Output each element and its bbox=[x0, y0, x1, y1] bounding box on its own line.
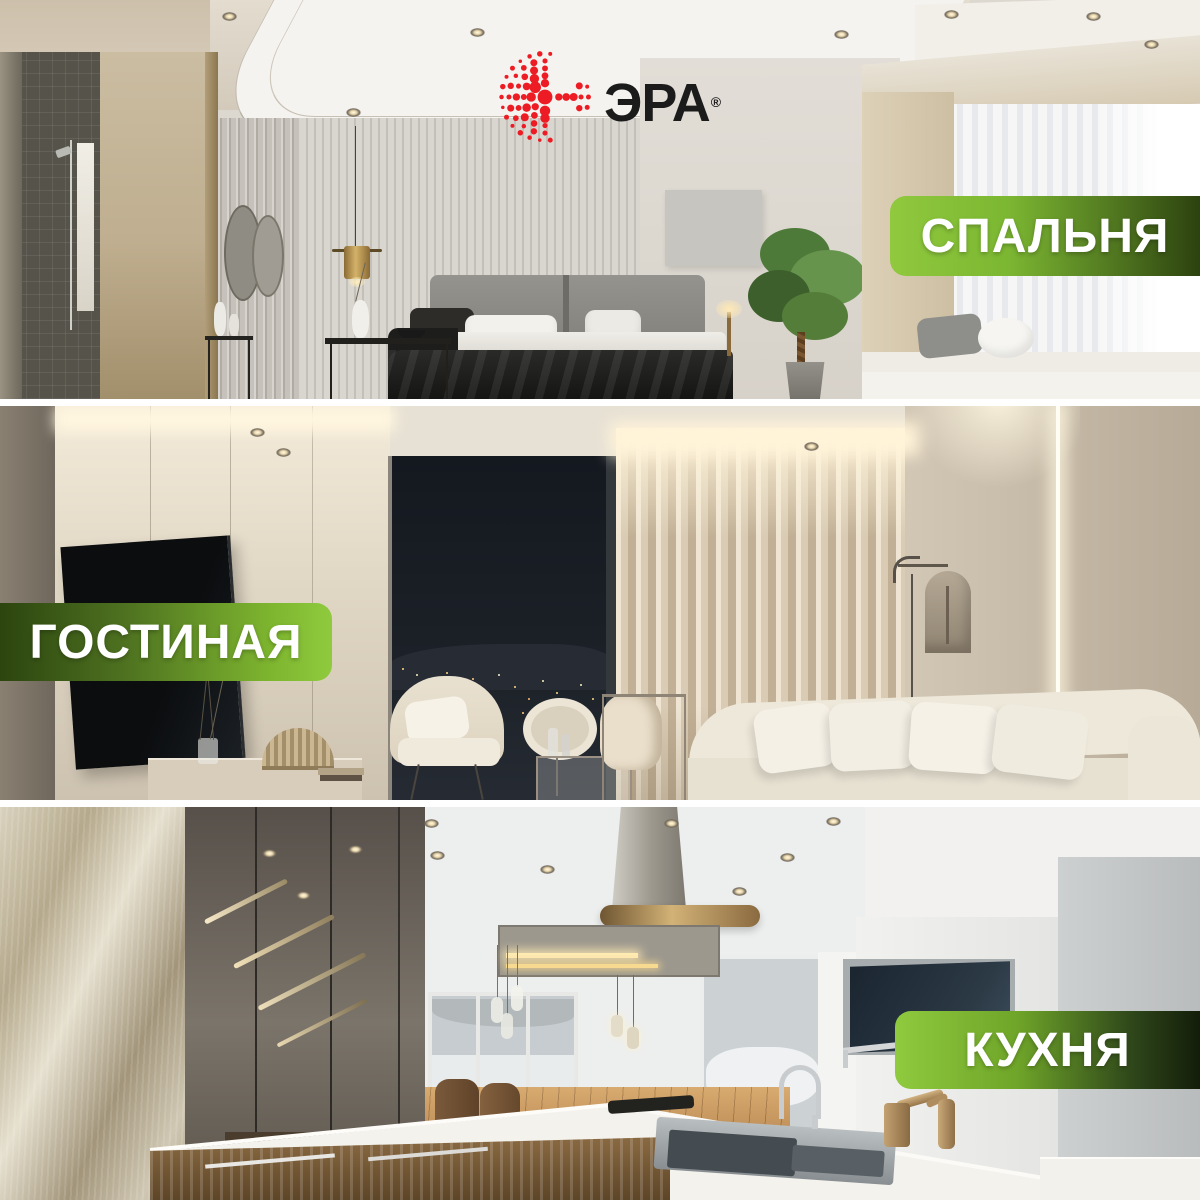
glass-vase bbox=[198, 738, 218, 764]
panel-separator bbox=[0, 399, 1200, 406]
ceiling-spotlight bbox=[944, 10, 959, 19]
armchair-seat bbox=[398, 738, 500, 766]
wardrobe-column bbox=[100, 52, 216, 399]
ceiling-spotlight bbox=[346, 108, 361, 117]
living-room-badge-label: ГОСТИНАЯ bbox=[29, 615, 302, 670]
era-wordmark: ЭРА® bbox=[604, 76, 719, 130]
side-table bbox=[205, 336, 253, 340]
side-table-leg bbox=[248, 340, 250, 399]
wall-sconce bbox=[946, 586, 949, 644]
ceiling-spotlight bbox=[348, 845, 363, 854]
seat-cushion-white bbox=[978, 318, 1034, 358]
chandelier-cord bbox=[507, 945, 508, 1015]
chandelier-glass bbox=[511, 985, 523, 1011]
pendant-bulb bbox=[611, 1015, 623, 1037]
pot-filler-stem bbox=[843, 1050, 848, 1068]
white-vase bbox=[214, 302, 226, 336]
valet-stand bbox=[602, 694, 604, 800]
right-counter bbox=[1040, 1157, 1200, 1200]
bronze-faucet-body bbox=[884, 1103, 910, 1147]
cove-light bbox=[610, 422, 920, 456]
living-room-badge: ГОСТИНАЯ bbox=[0, 603, 332, 681]
hood-light bbox=[506, 953, 638, 958]
ceiling-spotlight bbox=[834, 30, 849, 39]
wardrobe-edge bbox=[205, 52, 218, 399]
ceiling-spotlight bbox=[780, 853, 795, 862]
faucet-spout bbox=[812, 1115, 818, 1129]
plant-foliage bbox=[782, 292, 848, 340]
pendant-bulb bbox=[627, 1027, 639, 1049]
white-vase bbox=[229, 314, 239, 336]
chandelier-cord bbox=[517, 945, 518, 987]
round-chair bbox=[523, 698, 597, 760]
era-sun-icon bbox=[492, 44, 598, 150]
wall-art-panel bbox=[665, 190, 762, 266]
pendant-cord bbox=[617, 975, 618, 1017]
ceiling-spotlight bbox=[424, 819, 439, 828]
ceiling-spotlight bbox=[430, 851, 445, 860]
bedroom-badge: СПАЛЬНЯ bbox=[890, 196, 1200, 276]
kitchen-badge-label: КУХНЯ bbox=[964, 1023, 1131, 1078]
registered-trademark: ® bbox=[711, 94, 720, 110]
ceiling-spotlight bbox=[250, 428, 265, 437]
hood-light bbox=[506, 964, 658, 968]
ceiling-spotlight bbox=[276, 448, 291, 457]
console-table-leg bbox=[446, 344, 448, 399]
console-table bbox=[325, 338, 451, 344]
ceiling-spotlight bbox=[262, 849, 277, 858]
bed-duvet-sheen bbox=[388, 350, 733, 399]
gooseneck-faucet bbox=[779, 1065, 821, 1119]
draped-throw bbox=[600, 694, 662, 770]
ceiling-spotlight bbox=[470, 28, 485, 37]
pendant-lamp-shade bbox=[344, 246, 370, 279]
window-seat bbox=[862, 352, 1200, 374]
ceiling-spotlight bbox=[222, 12, 237, 21]
panel-separator bbox=[0, 800, 1200, 807]
stainless-panel-texture bbox=[0, 807, 185, 1200]
book-stack bbox=[320, 775, 362, 781]
ceiling-spotlight bbox=[732, 887, 747, 896]
table-lamp bbox=[727, 312, 731, 356]
ceiling-spotlight bbox=[1086, 12, 1101, 21]
valet-stand bbox=[684, 694, 686, 800]
wooden-nightstand bbox=[698, 356, 754, 399]
seat-cushion-gray bbox=[916, 313, 984, 359]
glassware bbox=[562, 734, 570, 758]
city-lights bbox=[402, 668, 404, 670]
table-lamp-glow bbox=[716, 300, 742, 318]
bathroom-wall-edge bbox=[0, 52, 22, 399]
oval-mirror bbox=[252, 215, 284, 297]
downlight-glow bbox=[900, 406, 1080, 496]
pendant-lamp-cord bbox=[355, 126, 356, 246]
kitchen-photo bbox=[0, 807, 1200, 1200]
bedroom-badge-label: СПАЛЬНЯ bbox=[921, 209, 1170, 264]
range-hood-frame bbox=[498, 925, 720, 977]
ceiling-spotlight bbox=[804, 442, 819, 451]
side-table-leg bbox=[208, 340, 210, 399]
ceiling-spotlight bbox=[540, 865, 555, 874]
chandelier-glass bbox=[501, 1013, 513, 1039]
ceiling-spotlight bbox=[1144, 40, 1159, 49]
ceiling-spotlight bbox=[664, 819, 679, 828]
ceiling-spotlight bbox=[826, 817, 841, 826]
decor-bowl bbox=[398, 330, 425, 338]
range-hood-brass-band bbox=[600, 905, 760, 927]
sofa-armrest bbox=[1128, 716, 1200, 800]
soap-dispenser bbox=[938, 1099, 955, 1149]
chandelier-cord bbox=[497, 945, 498, 999]
white-vase bbox=[352, 300, 369, 338]
bathroom-towel bbox=[77, 143, 94, 311]
era-logo: ЭРА® bbox=[492, 44, 719, 150]
cove-light bbox=[55, 406, 395, 432]
book-stack bbox=[318, 768, 364, 775]
kitchen-badge: КУХНЯ bbox=[895, 1011, 1200, 1089]
sofa-cushion bbox=[990, 703, 1090, 782]
plant-pot bbox=[783, 362, 827, 399]
glassware bbox=[548, 728, 558, 758]
ceiling-spotlight bbox=[296, 891, 311, 900]
pendant-cord bbox=[633, 975, 634, 1029]
sofa-cushion bbox=[752, 701, 838, 775]
window-seat-front bbox=[862, 372, 1200, 399]
floor-lamp-arc bbox=[893, 556, 920, 583]
era-rooms-promo-poster: СПАЛЬНЯ ГОСТИНАЯ КУХНЯ ЭРА® bbox=[0, 0, 1200, 1200]
console-table-leg bbox=[330, 344, 332, 399]
valet-stand-bar bbox=[602, 694, 686, 697]
sofa-cushion bbox=[908, 701, 1001, 775]
shower-glass-edge bbox=[70, 140, 72, 330]
pendant-lamp-glow bbox=[349, 277, 365, 287]
sofa-cushion bbox=[828, 700, 915, 772]
